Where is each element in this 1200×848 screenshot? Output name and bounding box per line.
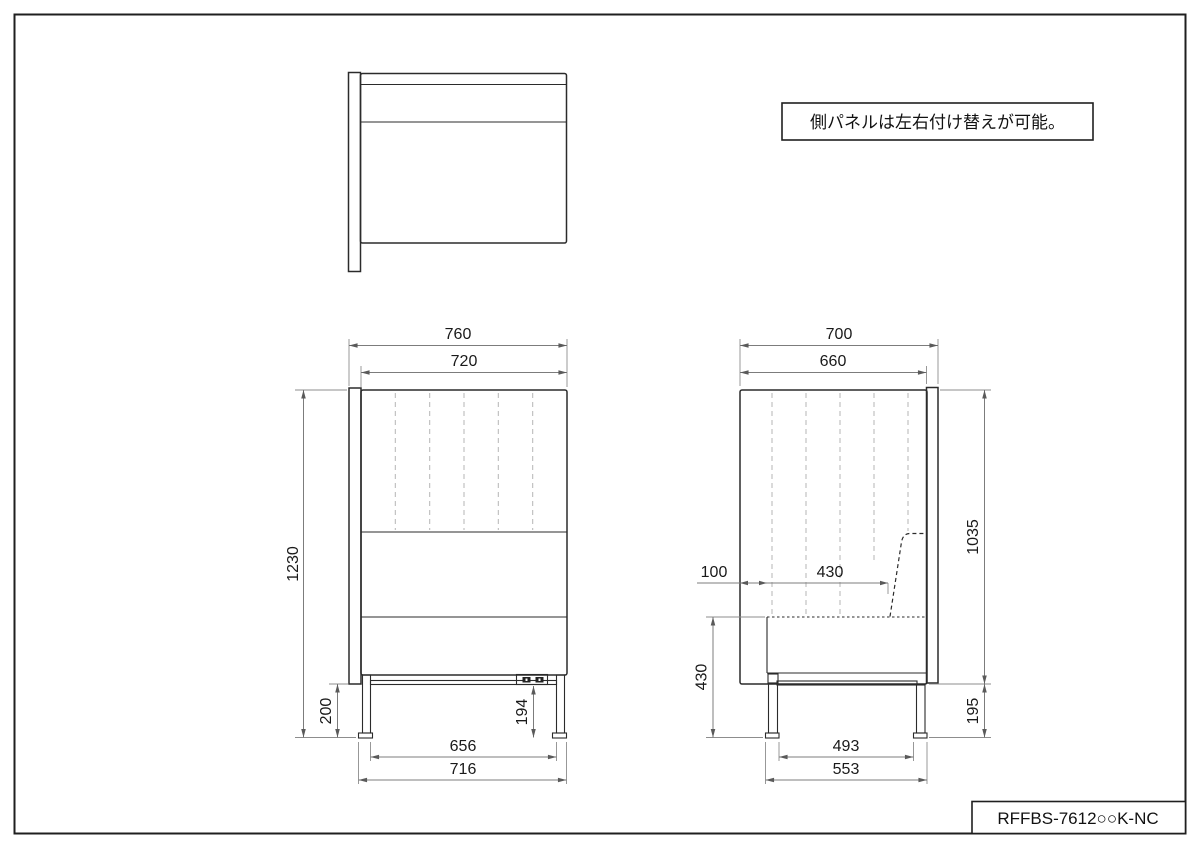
side-dimensions: 700 660 1035 195 100 430: [694, 326, 992, 784]
dim-front-height-total: 1230: [285, 546, 302, 582]
note-box: 側パネルは左右付け替えが可能。: [782, 103, 1093, 140]
dim-side-seat-front-offset: 100: [701, 564, 728, 581]
front-stitch-lines: [395, 393, 532, 530]
front-side-panel: [349, 388, 361, 684]
dim-side-seat-height: 430: [694, 664, 711, 691]
technical-drawing: 側パネルは左右付け替えが可能。 RFFBS-7612○○K-NC: [0, 0, 1200, 848]
dim-side-depth-total: 700: [826, 326, 853, 343]
dim-side-panel-clearance: 195: [965, 698, 982, 725]
part-number: RFFBS-7612○○K-NC: [997, 809, 1158, 828]
backrest-cushion-outline: [890, 534, 927, 617]
side-back-panel: [927, 388, 939, 684]
side-rear-leg: [914, 685, 928, 738]
side-panel-face: [740, 390, 927, 684]
dim-side-panel-height: 1035: [965, 519, 982, 555]
front-dimensions: 760 720 1230 200 194 656: [285, 326, 567, 784]
title-block: RFFBS-7612○○K-NC: [972, 802, 1186, 834]
dim-front-width-body: 720: [451, 353, 478, 370]
dim-front-leg-span-outer: 716: [450, 761, 477, 778]
side-view: 700 660 1035 195 100 430: [694, 326, 992, 784]
dim-front-panel-clearance: 200: [318, 698, 335, 725]
outlet-detail: [517, 675, 548, 685]
dim-side-seat-depth: 430: [817, 564, 844, 581]
dim-side-leg-span-outer: 553: [833, 761, 860, 778]
dim-front-outlet-height: 194: [514, 699, 531, 726]
top-view-side-panel: [349, 73, 361, 272]
dim-side-depth-body: 660: [820, 353, 847, 370]
note-text: 側パネルは左右付け替えが可能。: [810, 113, 1065, 132]
drawing-sheet: 側パネルは左右付け替えが可能。 RFFBS-7612○○K-NC: [0, 0, 1200, 848]
dim-front-leg-span-inner: 656: [450, 738, 477, 755]
side-seat-cushion: [767, 617, 927, 673]
dim-side-leg-span-inner: 493: [833, 738, 860, 755]
front-view: 760 720 1230 200 194 656: [285, 326, 567, 784]
top-view-body: [361, 74, 567, 244]
top-view: [349, 73, 567, 272]
dim-front-width-total: 760: [445, 326, 472, 343]
